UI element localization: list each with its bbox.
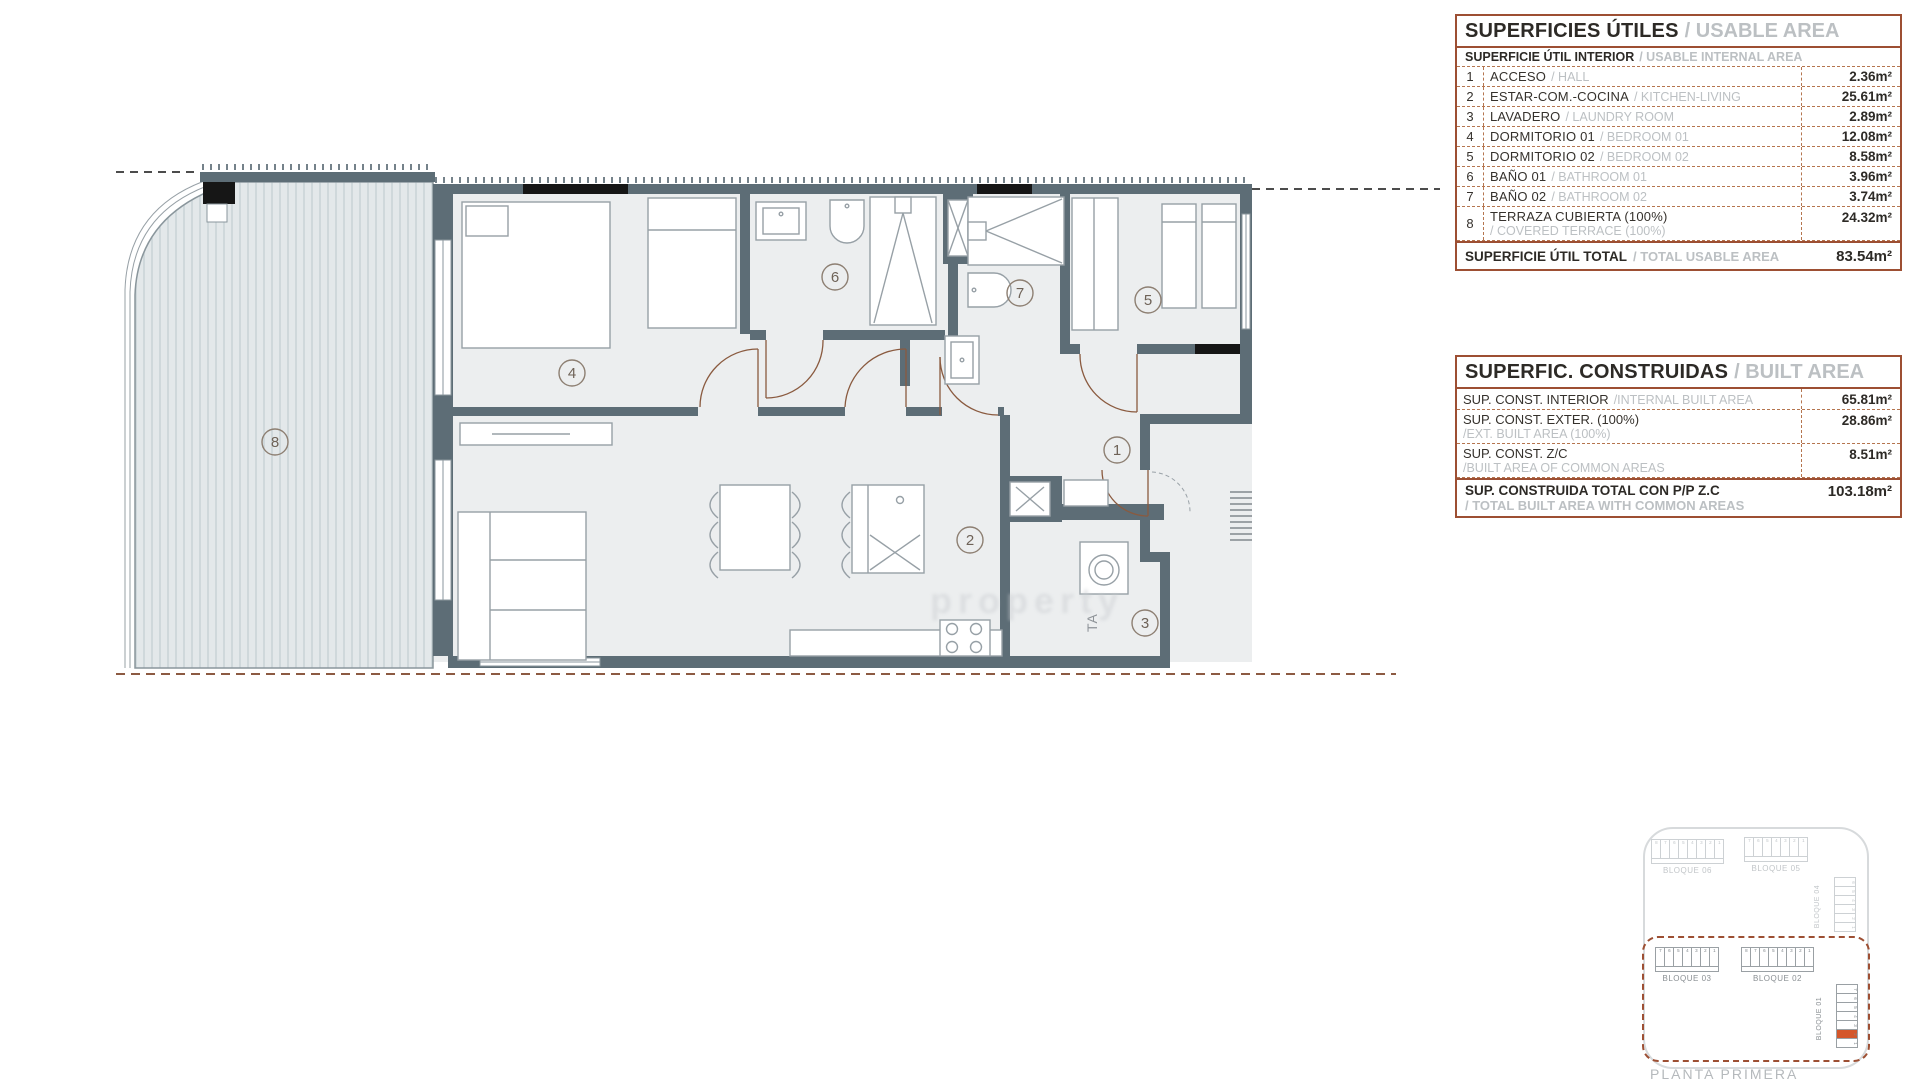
- site-plan-unit: 1: [1834, 922, 1856, 932]
- row-name: ESTAR-COM.-COCINA / KITCHEN-LIVING: [1484, 87, 1801, 106]
- block-bloque-05: 7654321 BLOQUE 05: [1744, 837, 1808, 873]
- row-value: 8.58m²: [1801, 147, 1900, 166]
- ta-label: TA: [1084, 613, 1100, 632]
- svg-text:6: 6: [831, 269, 839, 286]
- site-plan-unit: 7: [1655, 947, 1665, 967]
- site-plan-unit: 6: [1669, 839, 1679, 859]
- site-plan-unit: 4: [1834, 895, 1856, 905]
- table-row: 4 DORMITORIO 01 / BEDROOM 01 12.08m²: [1457, 127, 1900, 147]
- site-plan-unit: 1: [1804, 947, 1814, 967]
- built-area-table: SUPERFIC. CONSTRUIDAS / BUILT AREA SUP. …: [1455, 355, 1902, 518]
- row-name-es: SUP. CONST. INTERIOR: [1463, 392, 1609, 407]
- svg-text:4: 4: [568, 365, 576, 382]
- svg-text:3: 3: [1141, 615, 1149, 632]
- room-name-es: TERRAZA CUBIERTA (100%): [1490, 209, 1668, 224]
- block-label: BLOQUE 06: [1651, 866, 1724, 875]
- usable-area-table-subtitle: SUPERFICIE ÚTIL INTERIOR / USABLE INTERN…: [1457, 48, 1900, 67]
- site-plan-unit: 8: [1741, 947, 1751, 967]
- row-value: 2.89m²: [1801, 107, 1900, 126]
- site-plan-unit: 6: [1836, 993, 1858, 1003]
- row-name-en: /EXT. BUILT AREA (100%): [1463, 427, 1611, 441]
- site-plan-unit: 5: [1673, 947, 1683, 967]
- total-label-es: SUP. CONSTRUIDA TOTAL CON P/P Z.C: [1465, 483, 1744, 498]
- site-plan-unit: 7: [1750, 947, 1760, 967]
- site-plan-unit: 7: [1836, 984, 1858, 994]
- title-es: SUPERFICIES ÚTILES: [1465, 20, 1679, 43]
- title-en: / USABLE AREA: [1685, 20, 1840, 43]
- site-plan-unit: 4: [1777, 947, 1787, 967]
- row-name: BAÑO 01 / BATHROOM 01: [1484, 167, 1801, 186]
- floor-plan: 1 2 3 4 5 6 7 8 TA: [100, 140, 1460, 700]
- site-plan-unit: 6: [1834, 877, 1856, 887]
- total-value: 83.54m²: [1836, 248, 1892, 265]
- row-value: 3.96m²: [1801, 167, 1900, 186]
- site-plan-unit: 1: [1714, 839, 1724, 859]
- row-name-en: /INTERNAL BUILT AREA: [1614, 393, 1753, 407]
- built-area-total-row: SUP. CONSTRUIDA TOTAL CON P/P Z.C / TOTA…: [1457, 478, 1900, 516]
- site-plan-unit: 3: [1836, 1020, 1858, 1030]
- site-plan-unit: 3: [1691, 947, 1701, 967]
- site-plan-unit: 6: [1753, 837, 1763, 857]
- total-label-en: / TOTAL USABLE AREA: [1633, 249, 1779, 264]
- site-plan-unit: 3: [1786, 947, 1796, 967]
- block-label: BLOQUE 02: [1741, 974, 1814, 983]
- table-row: 5 DORMITORIO 02 / BEDROOM 02 8.58m²: [1457, 147, 1900, 167]
- room-name-en: / BATHROOM 01: [1551, 170, 1647, 184]
- site-plan-unit: 2: [1836, 1029, 1858, 1039]
- site-plan-boundary: [1643, 827, 1869, 1069]
- kitchen-island: [852, 485, 924, 573]
- closet: [1072, 198, 1118, 330]
- table-row: 7 BAÑO 02 / BATHROOM 02 3.74m²: [1457, 187, 1900, 207]
- row-value: 12.08m²: [1801, 127, 1900, 146]
- block-bloque-02: 87654321 BLOQUE 02: [1741, 947, 1814, 983]
- row-value: 25.61m²: [1801, 87, 1900, 106]
- svg-text:7: 7: [1016, 285, 1024, 302]
- title-en: / BUILT AREA: [1734, 361, 1864, 384]
- site-plan-unit: 1: [1798, 837, 1808, 857]
- row-value: 28.86m²: [1801, 410, 1900, 443]
- block-bloque-03: 7654321 BLOQUE 03: [1655, 947, 1719, 983]
- usable-area-total-row: SUPERFICIE ÚTIL TOTAL / TOTAL USABLE ARE…: [1457, 241, 1900, 269]
- site-plan-unit: 3: [1834, 904, 1856, 914]
- row-name: TERRAZA CUBIERTA (100%) / COVERED TERRAC…: [1484, 207, 1801, 240]
- usable-area-table-title: SUPERFICIES ÚTILES / USABLE AREA: [1457, 16, 1900, 48]
- row-name: SUP. CONST. EXTER. (100%) /EXT. BUILT AR…: [1457, 410, 1801, 443]
- site-plan-unit: 6: [1664, 947, 1674, 967]
- site-plan-unit: 7: [1744, 837, 1754, 857]
- table-row: 6 BAÑO 01 / BATHROOM 01 3.96m²: [1457, 167, 1900, 187]
- row-number: 6: [1457, 167, 1484, 186]
- row-name: BAÑO 02 / BATHROOM 02: [1484, 187, 1801, 206]
- total-value: 103.18m²: [1828, 483, 1892, 500]
- site-plan-unit: 2: [1705, 839, 1715, 859]
- row-value: 65.81m²: [1801, 389, 1900, 409]
- site-plan-unit: 4: [1682, 947, 1692, 967]
- row-name: DORMITORIO 02 / BEDROOM 02: [1484, 147, 1801, 166]
- room-name-en: / COVERED TERRACE (100%): [1490, 224, 1666, 238]
- row-name-en: /BUILT AREA OF COMMON AREAS: [1463, 461, 1665, 475]
- row-name-es: SUP. CONST. Z/C: [1463, 446, 1568, 461]
- block-bloque-04: 654321: [1834, 877, 1856, 931]
- washing-machine: [1080, 542, 1128, 594]
- block-label-bloque-01: BLOQUE 01: [1816, 997, 1823, 1040]
- shower: [870, 197, 936, 325]
- site-plan-unit: 3: [1696, 839, 1706, 859]
- site-plan-unit: 5: [1678, 839, 1688, 859]
- table-row: SUP. CONST. Z/C /BUILT AREA OF COMMON AR…: [1457, 444, 1900, 478]
- title-es: SUPERFIC. CONSTRUIDAS: [1465, 361, 1728, 384]
- room-name-es: BAÑO 01: [1490, 169, 1546, 184]
- room-name-es: DORMITORIO 02: [1490, 149, 1595, 164]
- total-label-es: SUPERFICIE ÚTIL TOTAL: [1465, 249, 1627, 264]
- block-bloque-01: 7654321: [1836, 984, 1858, 1047]
- site-plan-unit: 5: [1836, 1002, 1858, 1012]
- bed-single: [1162, 204, 1196, 308]
- usable-area-table: SUPERFICIES ÚTILES / USABLE AREA SUPERFI…: [1455, 14, 1902, 271]
- svg-text:8: 8: [271, 434, 279, 451]
- row-name: LAVADERO / LAUNDRY ROOM: [1484, 107, 1801, 126]
- row-value: 24.32m²: [1801, 207, 1900, 240]
- row-number: 1: [1457, 67, 1484, 86]
- terrace-deck: [125, 173, 433, 668]
- room-name-en: / BATHROOM 02: [1551, 190, 1647, 204]
- table-row: 2 ESTAR-COM.-COCINA / KITCHEN-LIVING 25.…: [1457, 87, 1900, 107]
- row-value: 3.74m²: [1801, 187, 1900, 206]
- room-name-en: / LAUNDRY ROOM: [1565, 110, 1674, 124]
- room-name-en: / BEDROOM 01: [1600, 130, 1689, 144]
- row-name: SUP. CONST. INTERIOR /INTERNAL BUILT ARE…: [1457, 389, 1801, 409]
- site-plan-unit: 2: [1789, 837, 1799, 857]
- site-plan-unit: 4: [1771, 837, 1781, 857]
- site-plan-unit: 1: [1709, 947, 1719, 967]
- built-area-table-title: SUPERFIC. CONSTRUIDAS / BUILT AREA: [1457, 357, 1900, 389]
- site-plan-highlight-boundary: [1642, 936, 1870, 1062]
- site-plan-unit: 6: [1759, 947, 1769, 967]
- site-plan-unit: 2: [1834, 913, 1856, 923]
- row-number: 3: [1457, 107, 1484, 126]
- subtitle-en: / USABLE INTERNAL AREA: [1639, 50, 1802, 64]
- site-plan-unit: 5: [1768, 947, 1778, 967]
- row-name: ACCESO / HALL: [1484, 67, 1801, 86]
- row-value: 8.51m²: [1801, 444, 1900, 477]
- svg-text:2: 2: [966, 532, 974, 549]
- site-plan-unit: 2: [1700, 947, 1710, 967]
- row-number: 4: [1457, 127, 1484, 146]
- room-name-en: / HALL: [1551, 70, 1589, 84]
- floor-plan-drawing: 1 2 3 4 5 6 7 8 TA: [100, 140, 1460, 700]
- row-number: 2: [1457, 87, 1484, 106]
- room-name-en: / BEDROOM 02: [1600, 150, 1689, 164]
- room-name-es: LAVADERO: [1490, 109, 1560, 124]
- site-plan-unit: 8: [1651, 839, 1661, 859]
- site-plan-unit: 1: [1836, 1038, 1858, 1048]
- site-plan-unit: 4: [1687, 839, 1697, 859]
- svg-text:1: 1: [1113, 442, 1121, 459]
- site-plan-unit: 5: [1762, 837, 1772, 857]
- block-bloque-06: 87654321 BLOQUE 06: [1651, 839, 1724, 875]
- block-label: BLOQUE 05: [1744, 864, 1808, 873]
- subtitle-es: SUPERFICIE ÚTIL INTERIOR: [1465, 50, 1634, 64]
- table-row: 8 TERRAZA CUBIERTA (100%) / COVERED TERR…: [1457, 207, 1900, 241]
- floorplan-page: { "floor_plan": { "room_labels": ["1","2…: [0, 0, 1920, 1080]
- svg-text:5: 5: [1144, 292, 1152, 309]
- terrace-corner-post: [207, 204, 227, 222]
- site-plan-unit: 7: [1660, 839, 1670, 859]
- row-number: 7: [1457, 187, 1484, 206]
- table-row: 3 LAVADERO / LAUNDRY ROOM 2.89m²: [1457, 107, 1900, 127]
- site-plan-unit: 2: [1795, 947, 1805, 967]
- row-value: 2.36m²: [1801, 67, 1900, 86]
- bed-single: [1202, 204, 1236, 308]
- table-row: SUP. CONST. EXTER. (100%) /EXT. BUILT AR…: [1457, 410, 1900, 444]
- row-name: SUP. CONST. Z/C /BUILT AREA OF COMMON AR…: [1457, 444, 1801, 477]
- room-name-es: ACCESO: [1490, 69, 1546, 84]
- room-name-es: DORMITORIO 01: [1490, 129, 1595, 144]
- room-name-en: / KITCHEN-LIVING: [1634, 90, 1741, 104]
- dining-table: [720, 485, 790, 570]
- closet: [648, 198, 736, 328]
- sofa: [458, 512, 586, 660]
- row-name-es: SUP. CONST. EXTER. (100%): [1463, 412, 1639, 427]
- hall-cabinet: [1064, 480, 1108, 506]
- block-label-bloque-04: BLOQUE 04: [1814, 885, 1821, 928]
- row-number: 8: [1457, 207, 1484, 240]
- row-name: DORMITORIO 01 / BEDROOM 01: [1484, 127, 1801, 146]
- total-label-en: / TOTAL BUILT AREA WITH COMMON AREAS: [1465, 498, 1744, 513]
- site-plan-unit: 5: [1834, 886, 1856, 896]
- site-plan-unit: 4: [1836, 1011, 1858, 1021]
- room-name-es: ESTAR-COM.-COCINA: [1490, 89, 1629, 104]
- block-label: BLOQUE 03: [1655, 974, 1719, 983]
- room-name-es: BAÑO 02: [1490, 189, 1546, 204]
- table-row: 1 ACCESO / HALL 2.36m²: [1457, 67, 1900, 87]
- table-row: SUP. CONST. INTERIOR /INTERNAL BUILT ARE…: [1457, 389, 1900, 410]
- row-number: 5: [1457, 147, 1484, 166]
- site-plan-unit: 3: [1780, 837, 1790, 857]
